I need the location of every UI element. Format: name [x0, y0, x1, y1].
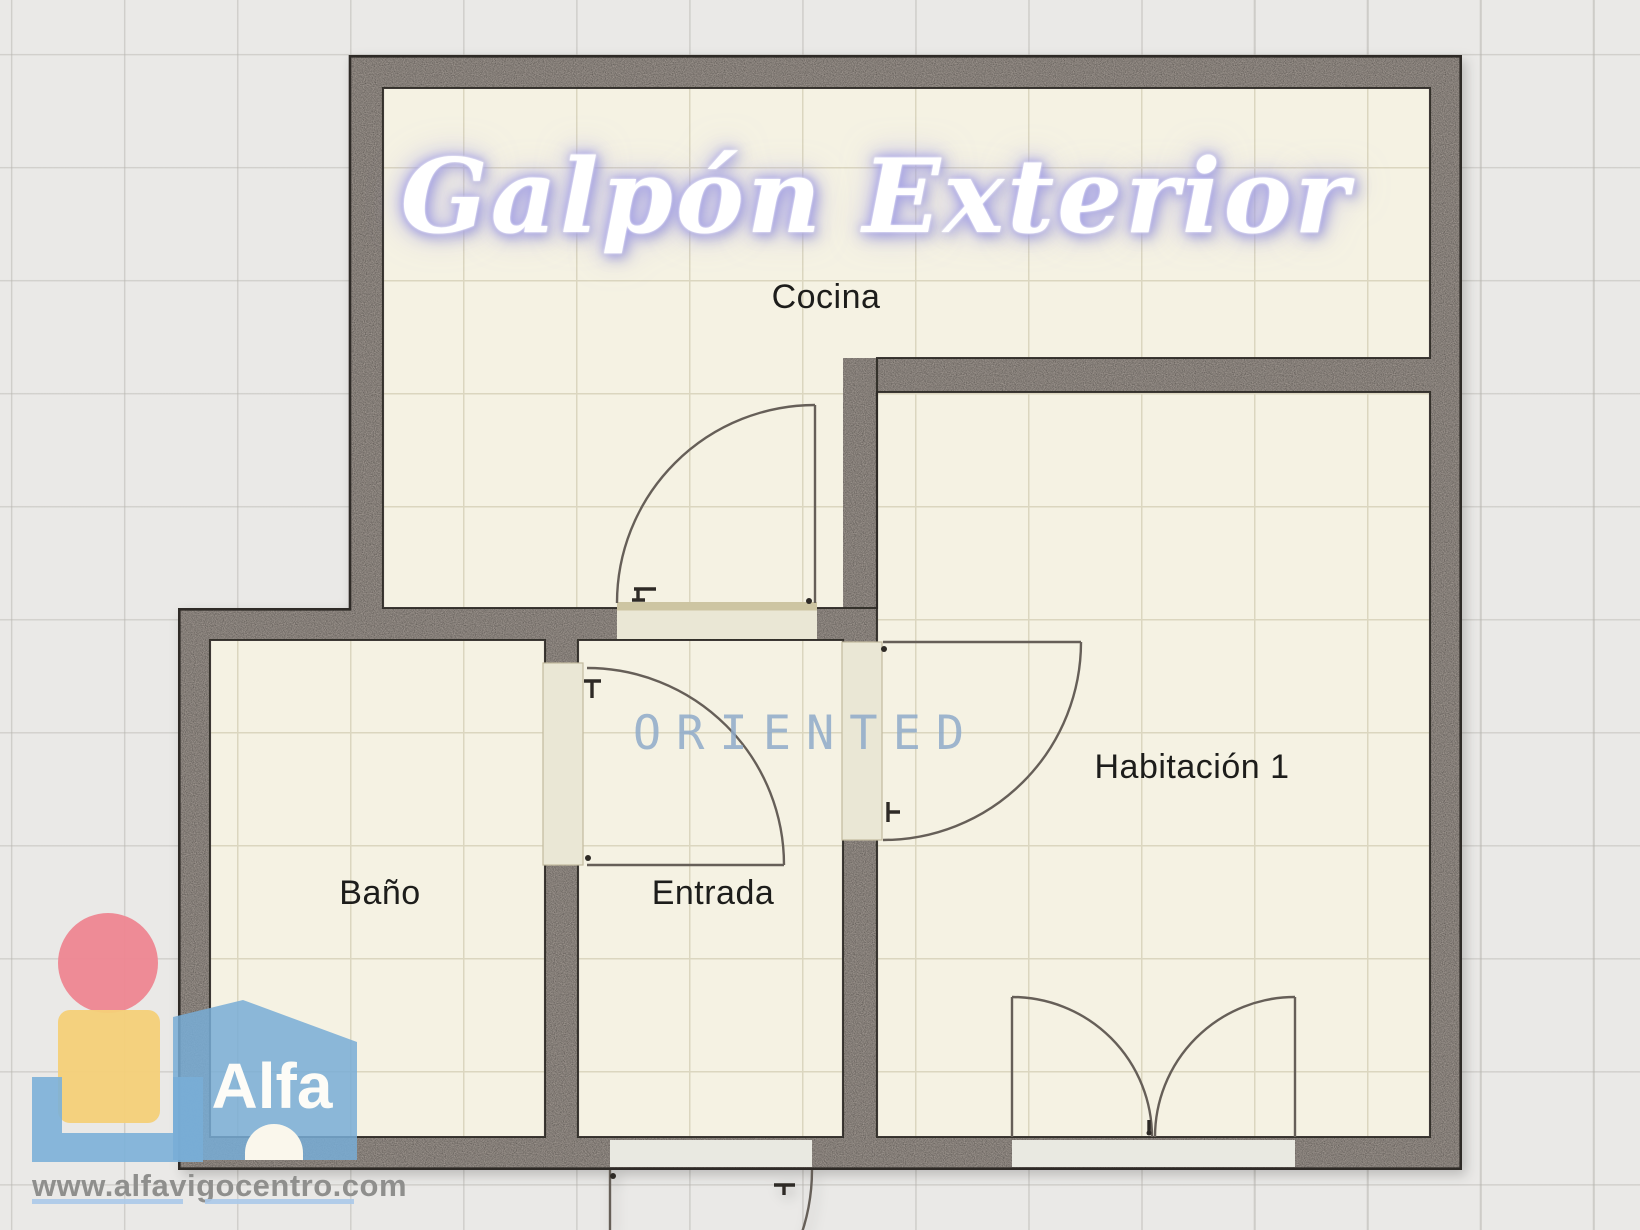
room-label-cocina: Cocina: [772, 278, 881, 316]
room-label-habitacion: Habitación 1: [1094, 748, 1289, 786]
cocina-door-sill: [617, 602, 817, 611]
doorway-cocina-entrada: [617, 609, 817, 639]
doorway-front: [610, 1140, 812, 1167]
room-label-entrada: Entrada: [652, 874, 775, 912]
plan-title: Galpón Exterior: [401, 146, 1352, 248]
logo-brand-text: Alfa: [212, 1050, 333, 1122]
room-label-bano: Baño: [339, 874, 420, 912]
door-front: [610, 1170, 812, 1230]
website-url-text: www.alfavigocentro.com: [31, 1168, 407, 1203]
url-underline-right: [205, 1199, 354, 1204]
url-underline-left: [32, 1199, 183, 1204]
doorway-double: [1012, 1140, 1295, 1167]
watermark-text: ORIENTED: [633, 706, 979, 761]
logo-circle-icon: [58, 913, 158, 1013]
logo-square-icon: [58, 1010, 160, 1123]
doorway-bano-entrada: [543, 663, 583, 865]
website-url: www.alfavigocentro.com: [31, 1168, 407, 1204]
